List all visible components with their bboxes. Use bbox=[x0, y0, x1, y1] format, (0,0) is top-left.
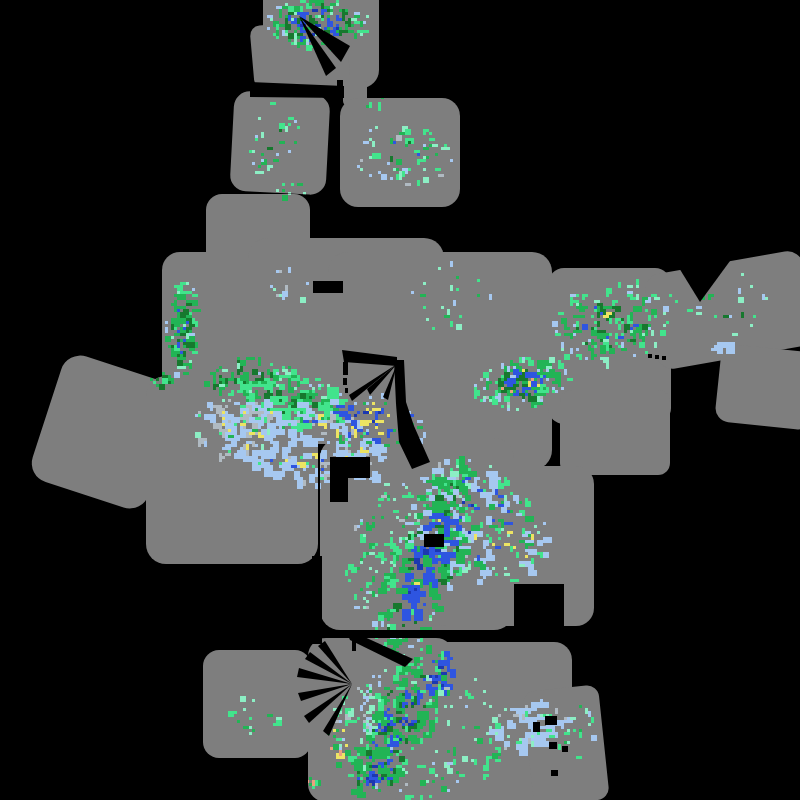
radar-viewport bbox=[0, 0, 800, 800]
radar-composite-map bbox=[0, 0, 800, 800]
